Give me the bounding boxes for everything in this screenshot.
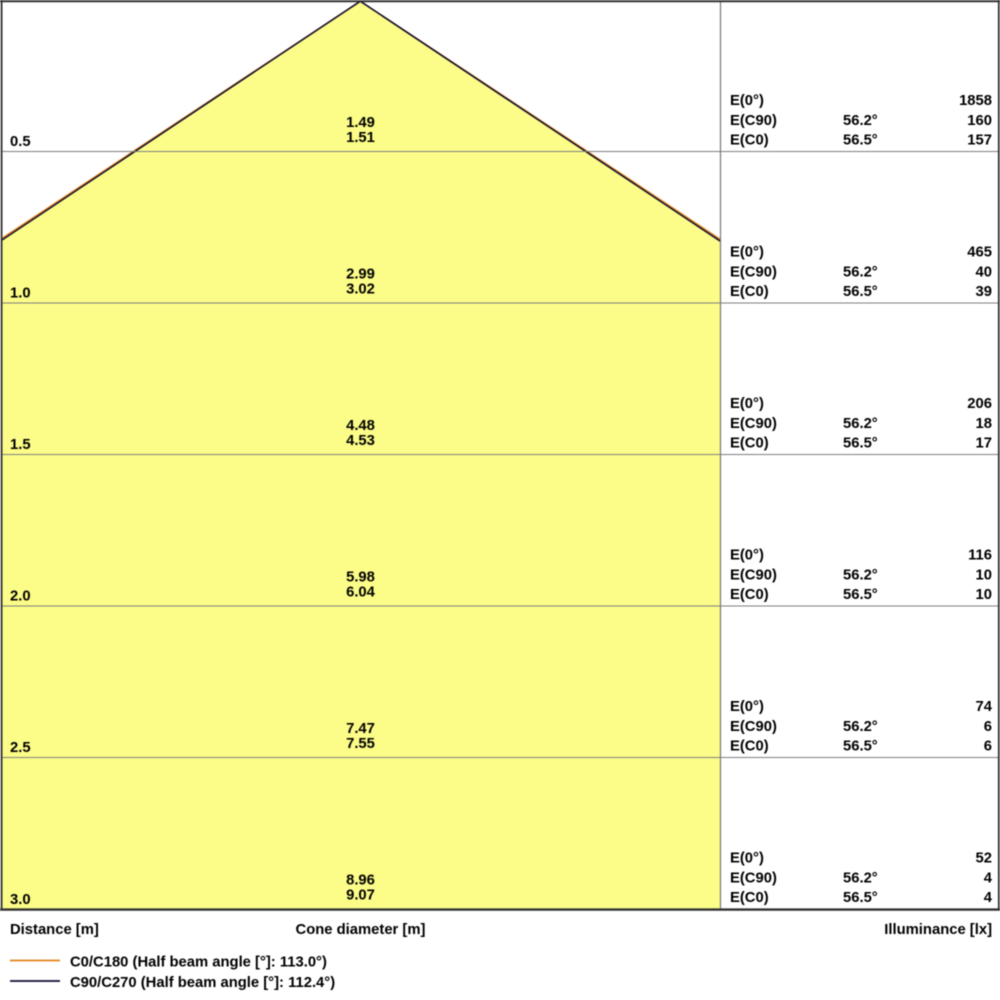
svg-text:56.5°: 56.5° bbox=[843, 587, 878, 603]
svg-text:10: 10 bbox=[976, 587, 992, 603]
svg-text:E(0°): E(0°) bbox=[730, 93, 764, 109]
svg-text:Illuminance [lx]: Illuminance [lx] bbox=[884, 922, 992, 938]
svg-text:3.02: 3.02 bbox=[346, 282, 375, 298]
svg-text:465: 465 bbox=[967, 245, 992, 261]
svg-text:E(0°): E(0°) bbox=[730, 396, 764, 412]
svg-text:E(C90): E(C90) bbox=[730, 567, 777, 583]
svg-text:206: 206 bbox=[967, 396, 992, 412]
svg-text:E(C90): E(C90) bbox=[730, 870, 777, 886]
svg-text:C0/C180 (Half beam angle [°]:: C0/C180 (Half beam angle [°]: 113.0°) bbox=[70, 954, 327, 970]
svg-text:74: 74 bbox=[976, 699, 993, 715]
svg-text:1858: 1858 bbox=[959, 93, 992, 109]
svg-text:56.5°: 56.5° bbox=[843, 284, 878, 300]
svg-text:E(C90): E(C90) bbox=[730, 264, 777, 280]
svg-text:56.5°: 56.5° bbox=[843, 436, 878, 452]
svg-text:6: 6 bbox=[984, 719, 992, 735]
svg-text:E(C0): E(C0) bbox=[730, 890, 769, 906]
svg-text:E(0°): E(0°) bbox=[730, 548, 764, 564]
svg-text:1.51: 1.51 bbox=[346, 130, 375, 146]
svg-text:56.2°: 56.2° bbox=[843, 416, 878, 432]
svg-text:6: 6 bbox=[984, 739, 992, 755]
svg-text:8.96: 8.96 bbox=[346, 872, 375, 888]
svg-text:56.2°: 56.2° bbox=[843, 113, 878, 129]
svg-text:E(C90): E(C90) bbox=[730, 416, 777, 432]
svg-text:116: 116 bbox=[968, 548, 992, 564]
svg-text:5.98: 5.98 bbox=[346, 569, 375, 585]
svg-text:157: 157 bbox=[967, 133, 992, 149]
svg-text:4.48: 4.48 bbox=[346, 418, 375, 434]
svg-text:56.5°: 56.5° bbox=[843, 890, 878, 906]
svg-text:18: 18 bbox=[976, 416, 992, 432]
svg-text:E(C90): E(C90) bbox=[730, 113, 777, 129]
svg-text:3.0: 3.0 bbox=[10, 892, 31, 908]
svg-text:10: 10 bbox=[976, 567, 992, 583]
svg-text:1.0: 1.0 bbox=[10, 285, 31, 301]
svg-text:6.04: 6.04 bbox=[346, 585, 376, 601]
svg-text:E(C0): E(C0) bbox=[730, 587, 769, 603]
svg-text:E(C90): E(C90) bbox=[730, 719, 777, 735]
svg-text:1.5: 1.5 bbox=[10, 437, 31, 453]
svg-text:1.49: 1.49 bbox=[346, 115, 375, 131]
svg-text:160: 160 bbox=[967, 113, 992, 129]
svg-text:2.99: 2.99 bbox=[346, 266, 375, 282]
svg-text:17: 17 bbox=[976, 436, 992, 452]
svg-text:2.5: 2.5 bbox=[10, 740, 31, 756]
svg-text:40: 40 bbox=[976, 264, 992, 280]
svg-text:E(C0): E(C0) bbox=[730, 436, 769, 452]
svg-text:Distance [m]: Distance [m] bbox=[10, 922, 99, 938]
svg-text:4.53: 4.53 bbox=[346, 433, 375, 449]
svg-text:56.5°: 56.5° bbox=[843, 133, 878, 149]
svg-text:56.2°: 56.2° bbox=[843, 719, 878, 735]
svg-text:E(0°): E(0°) bbox=[730, 851, 764, 867]
svg-text:4: 4 bbox=[984, 870, 993, 886]
svg-text:E(0°): E(0°) bbox=[730, 699, 764, 715]
svg-text:39: 39 bbox=[976, 284, 992, 300]
svg-text:7.55: 7.55 bbox=[346, 736, 375, 752]
svg-text:Cone diameter [m]: Cone diameter [m] bbox=[296, 922, 426, 938]
svg-text:52: 52 bbox=[976, 851, 992, 867]
svg-text:56.2°: 56.2° bbox=[843, 870, 878, 886]
svg-text:4: 4 bbox=[984, 890, 993, 906]
svg-text:E(C0): E(C0) bbox=[730, 284, 769, 300]
svg-text:9.07: 9.07 bbox=[346, 888, 375, 904]
svg-text:56.2°: 56.2° bbox=[843, 567, 878, 583]
svg-text:56.2°: 56.2° bbox=[843, 264, 878, 280]
svg-text:E(0°): E(0°) bbox=[730, 245, 764, 261]
svg-text:0.5: 0.5 bbox=[10, 134, 31, 150]
svg-text:56.5°: 56.5° bbox=[843, 739, 878, 755]
svg-text:7.47: 7.47 bbox=[346, 721, 375, 737]
svg-text:2.0: 2.0 bbox=[10, 588, 31, 604]
svg-text:C90/C270 (Half beam angle [°]:: C90/C270 (Half beam angle [°]: 112.4°) bbox=[70, 975, 335, 991]
svg-text:E(C0): E(C0) bbox=[730, 133, 769, 149]
svg-text:E(C0): E(C0) bbox=[730, 739, 769, 755]
